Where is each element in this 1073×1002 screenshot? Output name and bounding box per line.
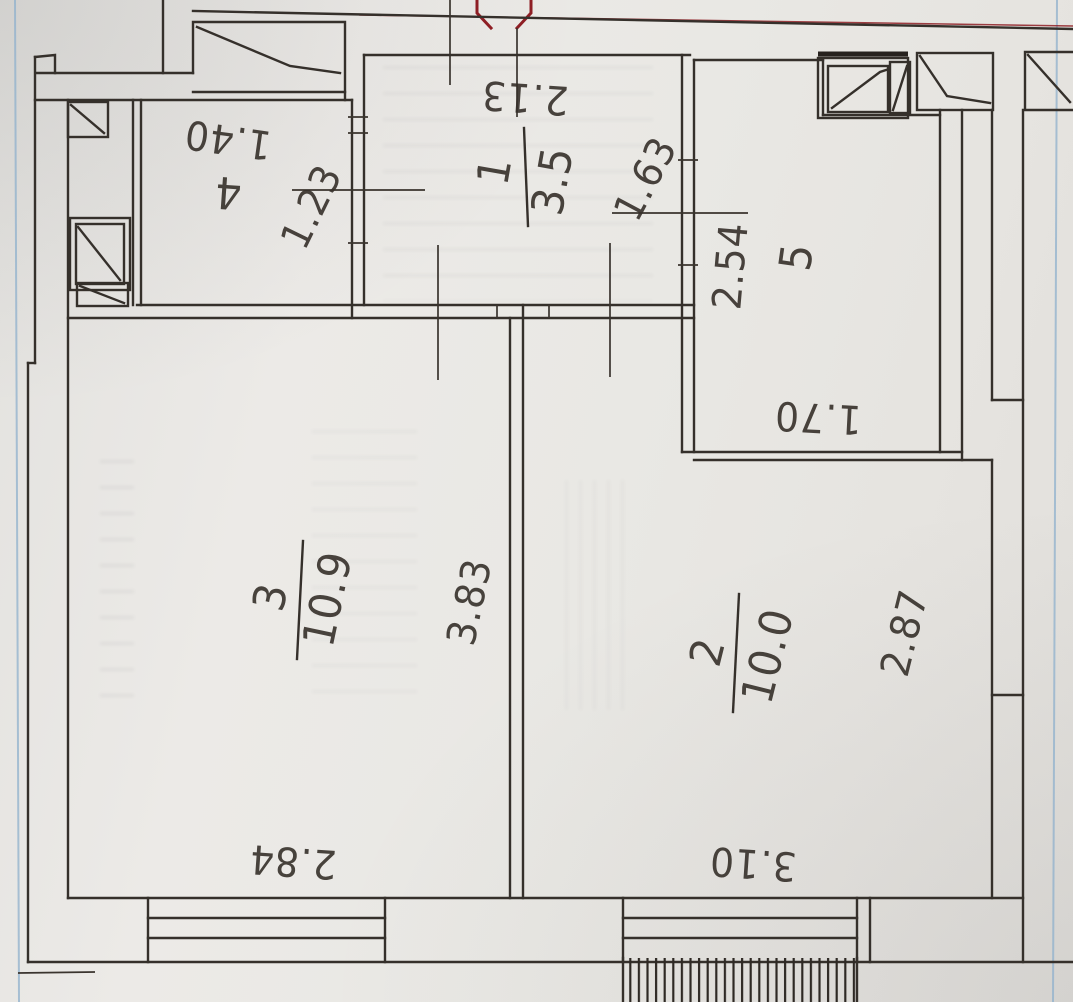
window-room3: [148, 898, 385, 962]
window-room2: [623, 898, 857, 962]
top-boundary-line: [193, 11, 1073, 29]
balcony-hatch: [623, 958, 857, 1002]
floor-plan-photo: 2.13 1 3.5 1.23 1.63 4 1.40 5 2.54 1.70 …: [0, 0, 1073, 1002]
vent-shaft-blocks: [68, 102, 130, 306]
dim-hall-width: 2.13: [480, 71, 570, 123]
room-4-number: 4: [213, 166, 244, 219]
red-entrance-marker: [360, 0, 1073, 28]
dim-room2-width: 3.10: [708, 837, 798, 889]
dim-room5-height: 2.54: [704, 220, 757, 311]
dim-room3-width: 2.84: [248, 835, 338, 887]
dim-room5-width: 1.70: [773, 392, 863, 443]
adjacent-structures: [163, 0, 1073, 962]
